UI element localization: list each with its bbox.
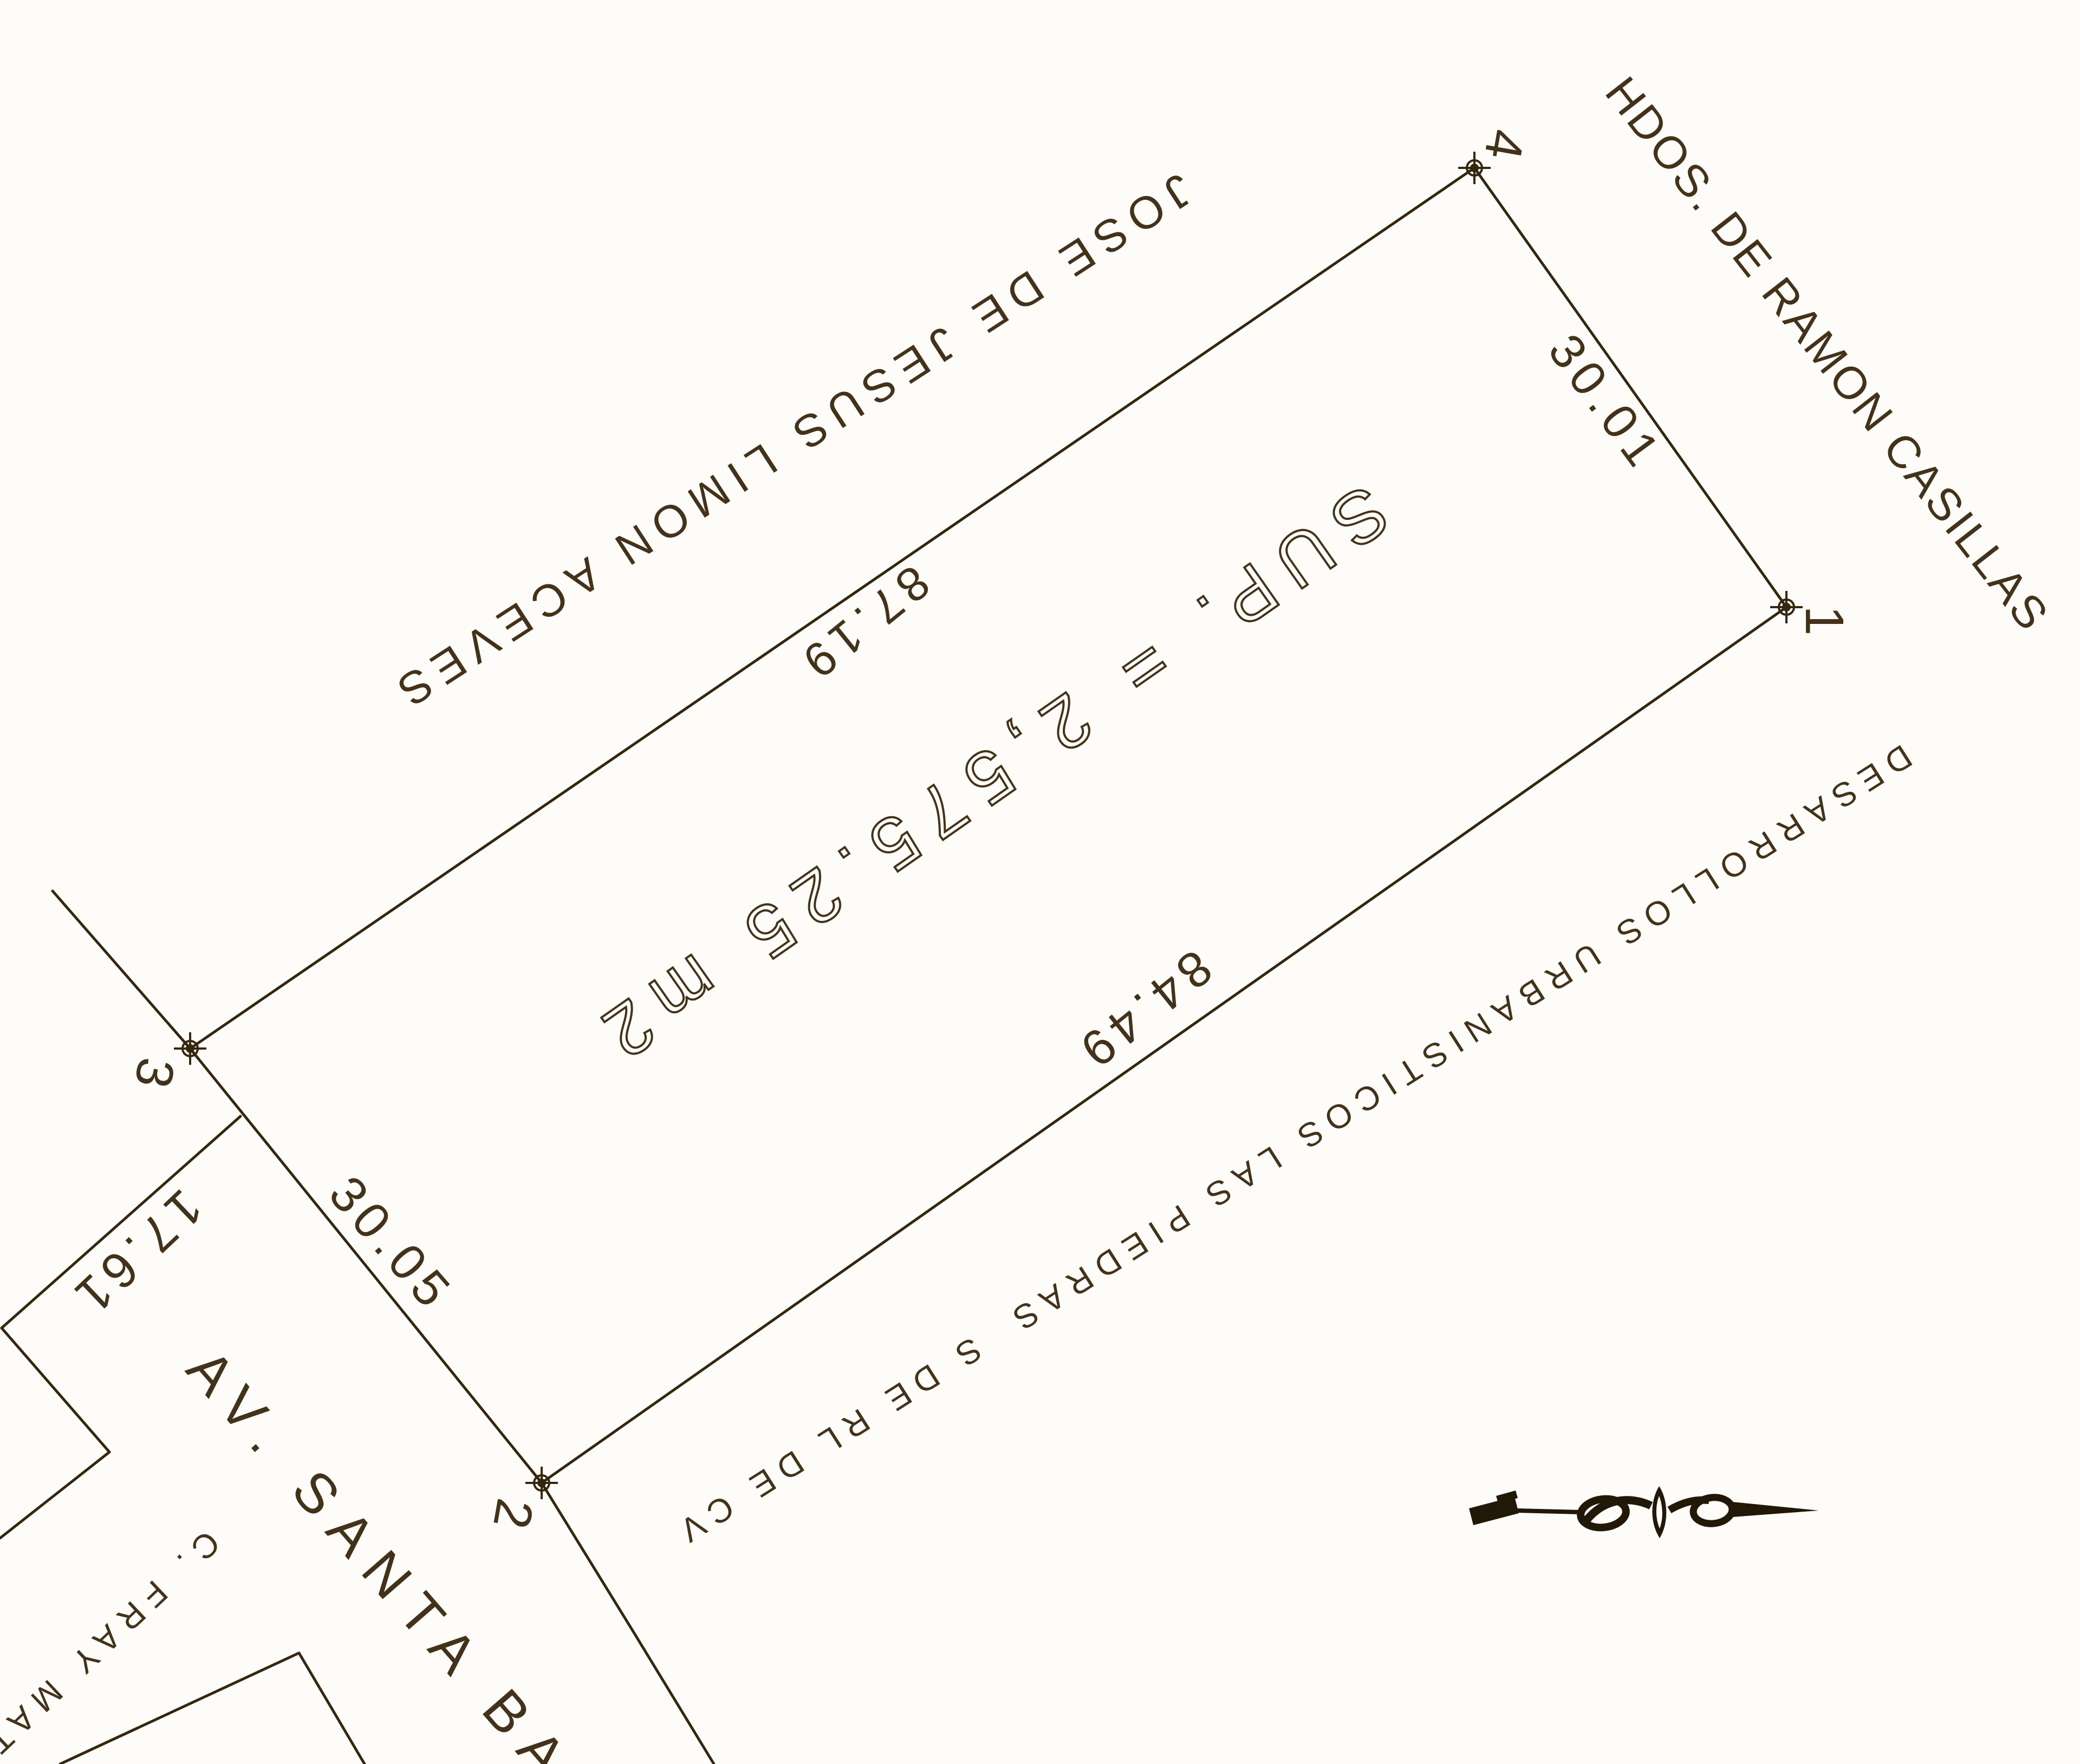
svg-text:4: 4 bbox=[1473, 125, 1536, 164]
svg-text:AV. SANTA BARBARA: AV. SANTA BARBARA bbox=[175, 1338, 766, 1764]
svg-text:2: 2 bbox=[482, 1494, 544, 1533]
svg-text:3: 3 bbox=[123, 1053, 186, 1092]
svg-text:C. FRAY MATIAS: C. FRAY MATIAS bbox=[0, 1524, 227, 1764]
svg-text:SUP. = 2,575.25 m2: SUP. = 2,575.25 m2 bbox=[576, 470, 1403, 1083]
svg-text:HDOS. DE RAMON CASILLAS: HDOS. DE RAMON CASILLAS bbox=[1596, 67, 2059, 641]
svg-text:30.01: 30.01 bbox=[1538, 324, 1673, 481]
svg-text:17.61: 17.61 bbox=[61, 1179, 214, 1328]
svg-text:1: 1 bbox=[1794, 606, 1855, 636]
